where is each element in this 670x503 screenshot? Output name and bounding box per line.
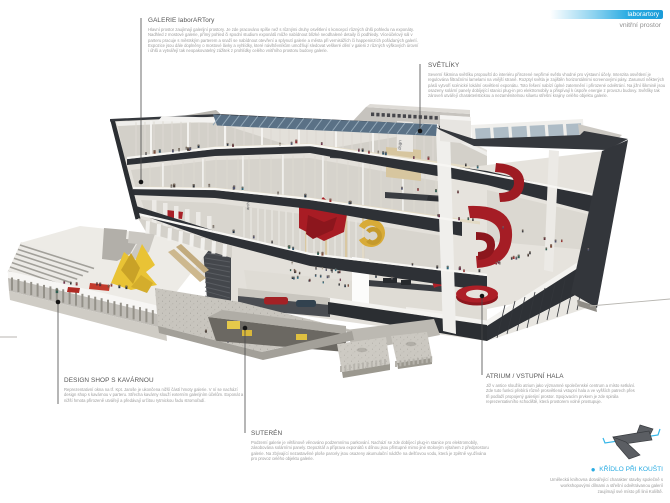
svg-text:arch: arch bbox=[245, 202, 250, 210]
svg-text:dsgn: dsgn bbox=[397, 140, 402, 150]
